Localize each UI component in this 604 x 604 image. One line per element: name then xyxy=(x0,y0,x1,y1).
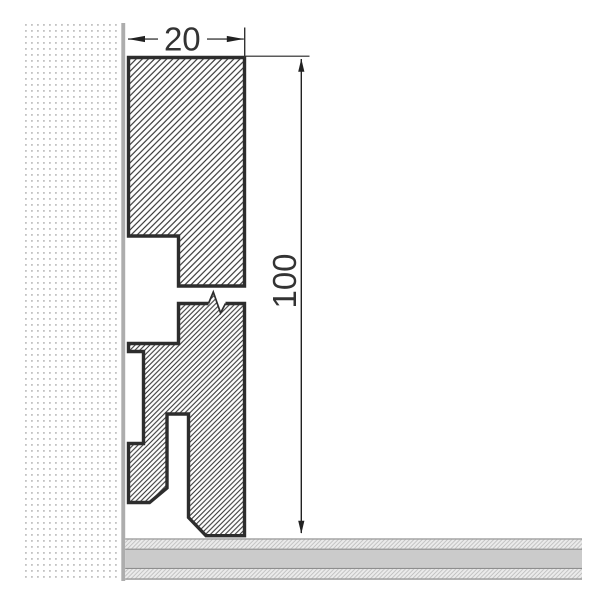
svg-text:20: 20 xyxy=(164,21,201,58)
svg-text:100: 100 xyxy=(266,253,303,308)
